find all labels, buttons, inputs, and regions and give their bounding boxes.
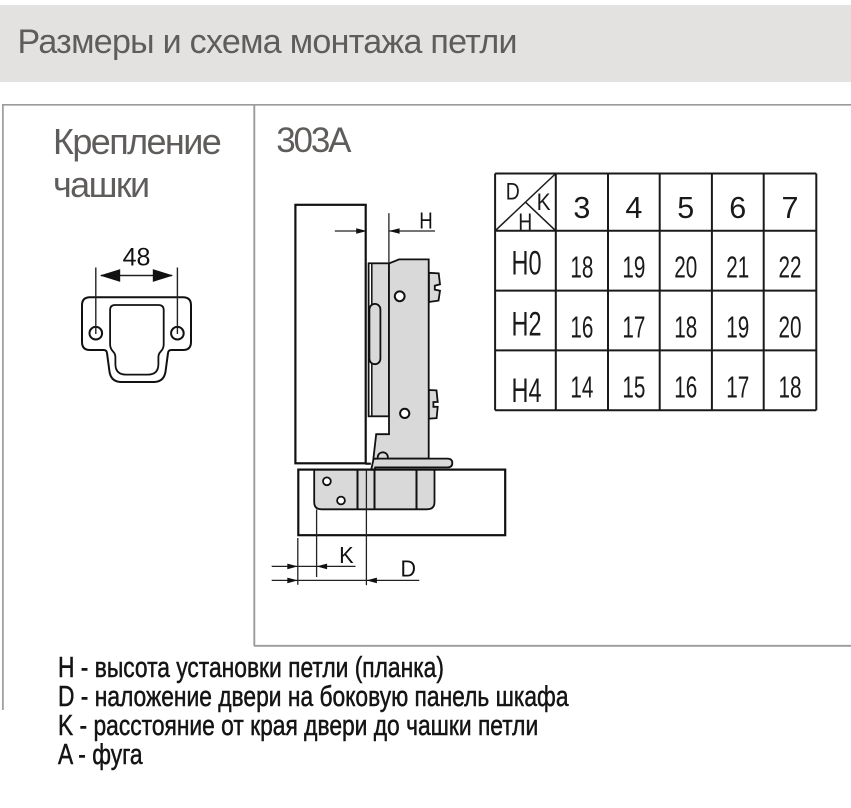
svg-text:K: K <box>537 189 551 216</box>
svg-text:H4: H4 <box>512 372 542 410</box>
svg-text:48: 48 <box>123 244 151 272</box>
svg-text:3: 3 <box>573 190 590 225</box>
svg-text:H0: H0 <box>512 245 542 283</box>
svg-text:17: 17 <box>726 370 749 405</box>
svg-text:4: 4 <box>625 190 642 225</box>
svg-text:H: H <box>518 209 532 236</box>
svg-text:19: 19 <box>622 249 645 284</box>
svg-text:17: 17 <box>622 309 645 344</box>
svg-text:14: 14 <box>570 370 593 405</box>
svg-text:D: D <box>506 179 520 206</box>
svg-text:18: 18 <box>570 249 593 284</box>
svg-text:K: K <box>339 542 354 568</box>
svg-text:22: 22 <box>779 249 802 284</box>
svg-text:20: 20 <box>674 249 697 284</box>
svg-text:7: 7 <box>782 190 799 225</box>
svg-text:18: 18 <box>674 309 697 344</box>
svg-text:19: 19 <box>726 309 749 344</box>
svg-text:16: 16 <box>570 309 593 344</box>
svg-text:20: 20 <box>779 309 802 344</box>
svg-text:D: D <box>400 555 416 581</box>
svg-text:16: 16 <box>674 370 697 405</box>
svg-text:21: 21 <box>726 249 749 284</box>
svg-text:18: 18 <box>779 370 802 405</box>
svg-text:15: 15 <box>622 370 645 405</box>
svg-text:H: H <box>419 208 433 234</box>
svg-text:5: 5 <box>677 190 694 225</box>
svg-text:H2: H2 <box>512 306 542 344</box>
svg-text:6: 6 <box>729 190 746 225</box>
